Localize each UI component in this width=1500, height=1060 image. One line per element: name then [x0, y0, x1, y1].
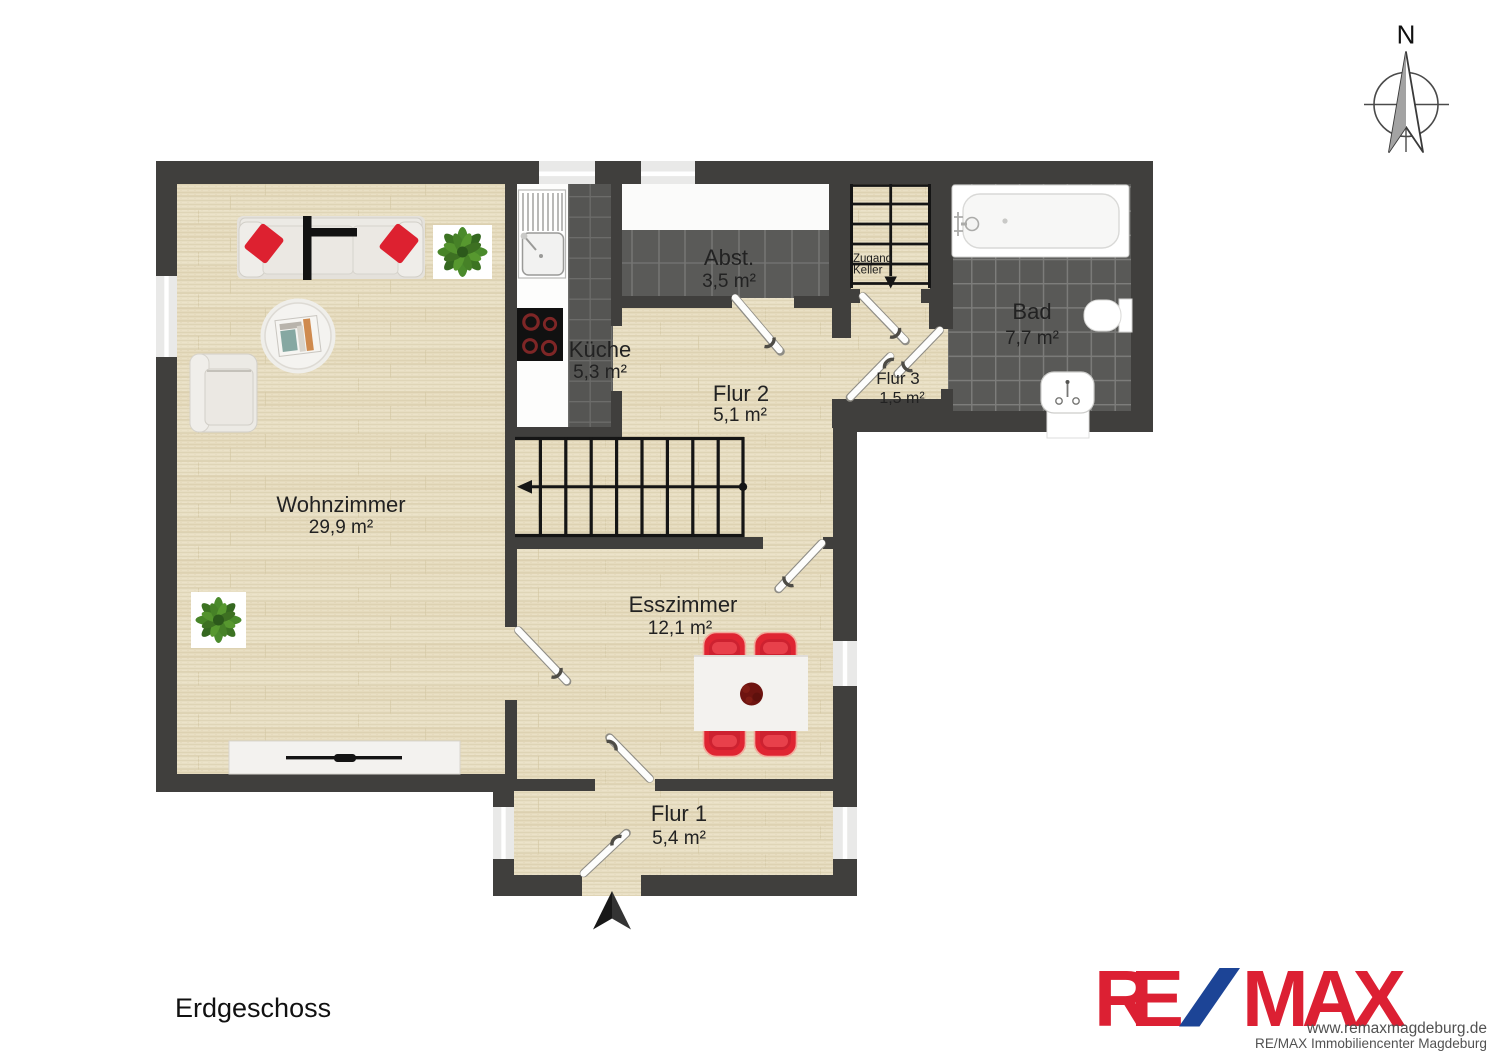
svg-text:5,1 m²: 5,1 m² — [713, 405, 767, 426]
svg-text:Bad: Bad — [1012, 299, 1051, 324]
svg-text:N: N — [1397, 20, 1416, 50]
svg-text:www.remaxmagdeburg.de: www.remaxmagdeburg.de — [1306, 1020, 1487, 1037]
svg-text:Wohnzimmer: Wohnzimmer — [276, 492, 405, 517]
svg-text:12,1 m²: 12,1 m² — [648, 618, 712, 639]
svg-text:Küche: Küche — [569, 337, 631, 362]
svg-text:Keller: Keller — [853, 265, 883, 277]
svg-text:Flur 1: Flur 1 — [651, 801, 707, 826]
svg-text:Erdgeschoss: Erdgeschoss — [175, 993, 331, 1023]
svg-text:Flur 2: Flur 2 — [713, 381, 769, 406]
svg-text:Abst.: Abst. — [704, 245, 754, 270]
svg-text:5,4 m²: 5,4 m² — [652, 828, 706, 849]
svg-text:5,3 m²: 5,3 m² — [573, 362, 627, 383]
svg-text:Flur 3: Flur 3 — [876, 369, 919, 388]
svg-text:Esszimmer: Esszimmer — [629, 592, 738, 617]
svg-text:RE: RE — [1094, 954, 1184, 1043]
svg-text:29,9 m²: 29,9 m² — [309, 517, 373, 538]
svg-text:RE/MAX Immobiliencenter Magdeb: RE/MAX Immobiliencenter Magdeburg — [1255, 1036, 1487, 1051]
svg-text:3,5 m²: 3,5 m² — [702, 271, 756, 292]
svg-text:7,7 m²: 7,7 m² — [1005, 328, 1059, 349]
svg-text:1,5 m²: 1,5 m² — [879, 390, 925, 407]
svg-text:Zugang: Zugang — [853, 253, 892, 265]
